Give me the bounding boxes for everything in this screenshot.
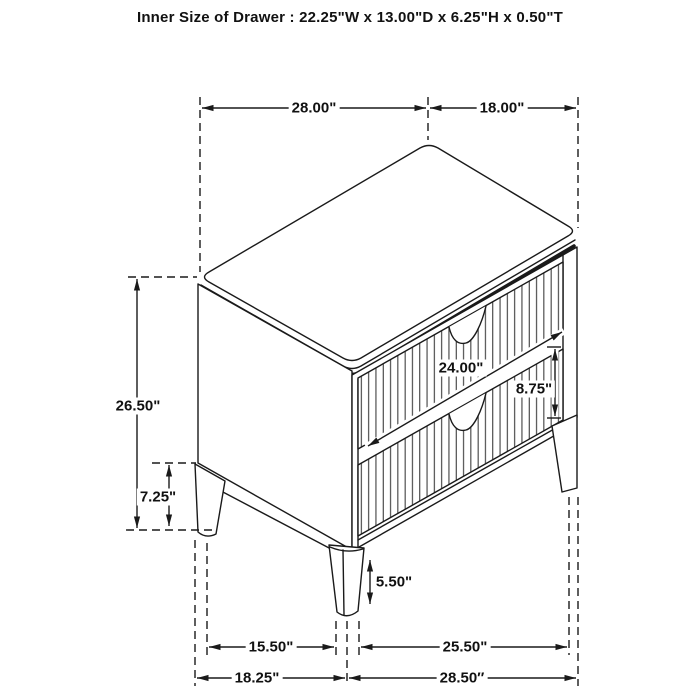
leg-front <box>329 545 364 616</box>
dim-label-base-width: 18.25" <box>232 670 283 687</box>
dim-label-overall-height: 26.50" <box>113 398 164 415</box>
leg-front-right <box>552 415 577 492</box>
dim-label-side-leg-spacing: 25.50" <box>440 639 491 656</box>
dim-label-drawer-width: 24.00" <box>436 360 487 377</box>
leg-front-corner-edge <box>343 550 344 615</box>
dim-label-front-leg-spacing: 15.50" <box>246 639 297 656</box>
diagram-title: Inner Size of Drawer : 22.25"W x 13.00"D… <box>0 9 700 26</box>
dim-label-side-leg-height: 7.25" <box>137 489 179 506</box>
dim-label-base-depth: 28.50″ <box>437 670 488 687</box>
dim-label-top-width: 28.00" <box>289 100 340 117</box>
dim-label-top-depth: 18.00" <box>477 100 528 117</box>
nightstand-diagram <box>0 0 700 700</box>
dim-label-front-leg-height: 5.50" <box>373 574 415 591</box>
dimension-diagram-page: Inner Size of Drawer : 22.25"W x 13.00"D… <box>0 0 700 700</box>
dim-label-drawer-front-height: 8.75" <box>513 381 555 398</box>
